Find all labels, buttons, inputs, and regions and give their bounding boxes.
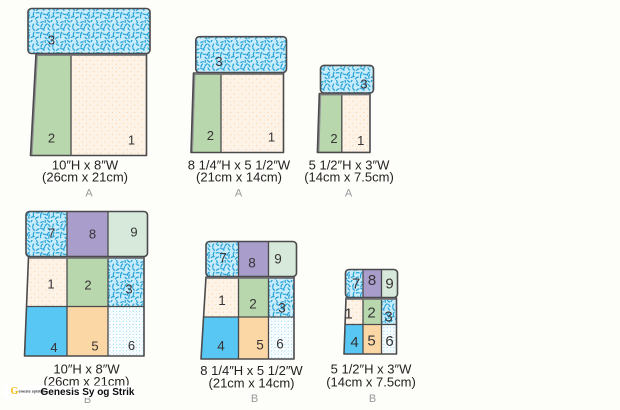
svg-text:3: 3	[278, 301, 286, 316]
svg-text:1: 1	[344, 306, 352, 323]
svg-text:(26cm x 21cm): (26cm x 21cm)	[42, 170, 128, 185]
svg-text:1: 1	[268, 130, 275, 145]
svg-text:1: 1	[357, 133, 364, 148]
svg-text:7: 7	[219, 251, 227, 266]
svg-text:5: 5	[91, 339, 98, 354]
svg-text:2: 2	[367, 305, 375, 322]
svg-text:4: 4	[217, 339, 225, 354]
svg-text:4: 4	[350, 334, 358, 351]
svg-text:B: B	[369, 393, 376, 405]
svg-text:7: 7	[352, 276, 360, 293]
svg-text:6: 6	[128, 338, 135, 353]
svg-text:9: 9	[385, 276, 393, 293]
svg-text:6: 6	[385, 333, 393, 350]
svg-text:Genesis Sy og Strik: Genesis Sy og Strik	[41, 387, 135, 398]
svg-text:(14cm x 7.5cm): (14cm x 7.5cm)	[304, 170, 394, 185]
svg-text:1: 1	[47, 277, 54, 292]
svg-text:2: 2	[330, 131, 337, 146]
svg-text:A: A	[345, 188, 353, 200]
svg-text:8: 8	[89, 227, 96, 242]
svg-text:8: 8	[368, 272, 376, 289]
svg-text:(21cm x 14cm): (21cm x 14cm)	[209, 376, 295, 391]
svg-text:(14cm x 7.5cm): (14cm x 7.5cm)	[326, 375, 416, 390]
svg-text:2: 2	[84, 278, 91, 293]
svg-text:2: 2	[249, 297, 257, 312]
svg-text:2: 2	[207, 128, 214, 143]
svg-text:(21cm x 14cm): (21cm x 14cm)	[196, 170, 282, 185]
svg-text:3: 3	[48, 33, 55, 48]
svg-text:A: A	[235, 188, 243, 200]
svg-text:A: A	[85, 188, 93, 200]
svg-text:1: 1	[218, 293, 226, 308]
svg-text:2: 2	[48, 131, 55, 146]
svg-text:1: 1	[128, 133, 135, 148]
svg-text:6: 6	[276, 337, 284, 352]
svg-text:3: 3	[125, 282, 132, 297]
svg-text:9: 9	[130, 225, 137, 240]
svg-text:3: 3	[384, 309, 392, 326]
svg-text:B: B	[251, 393, 258, 405]
svg-text:3: 3	[360, 76, 367, 91]
svg-text:3: 3	[215, 54, 222, 69]
svg-text:G: G	[11, 386, 19, 397]
svg-text:4: 4	[50, 340, 57, 355]
svg-text:9: 9	[274, 252, 282, 267]
svg-text:7: 7	[48, 226, 55, 241]
svg-text:5: 5	[367, 333, 375, 350]
svg-text:8: 8	[248, 256, 256, 271]
svg-text:5: 5	[256, 338, 264, 353]
